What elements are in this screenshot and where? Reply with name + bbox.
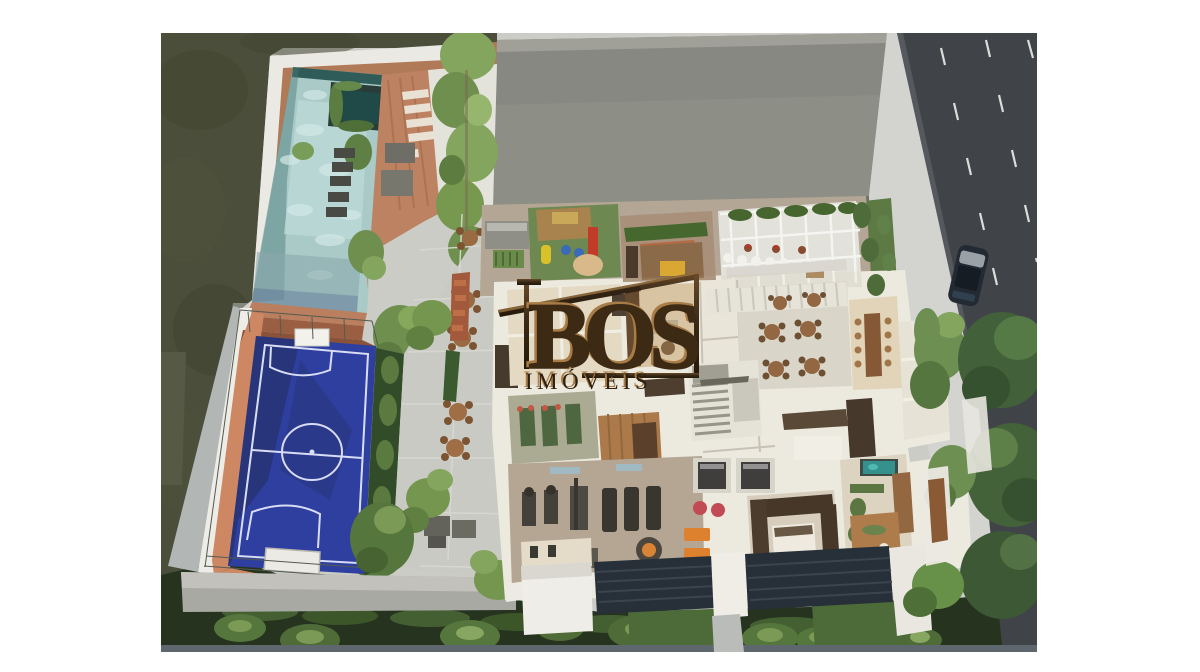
svg-text:IMÓVEIS: IMÓVEIS bbox=[525, 368, 652, 394]
